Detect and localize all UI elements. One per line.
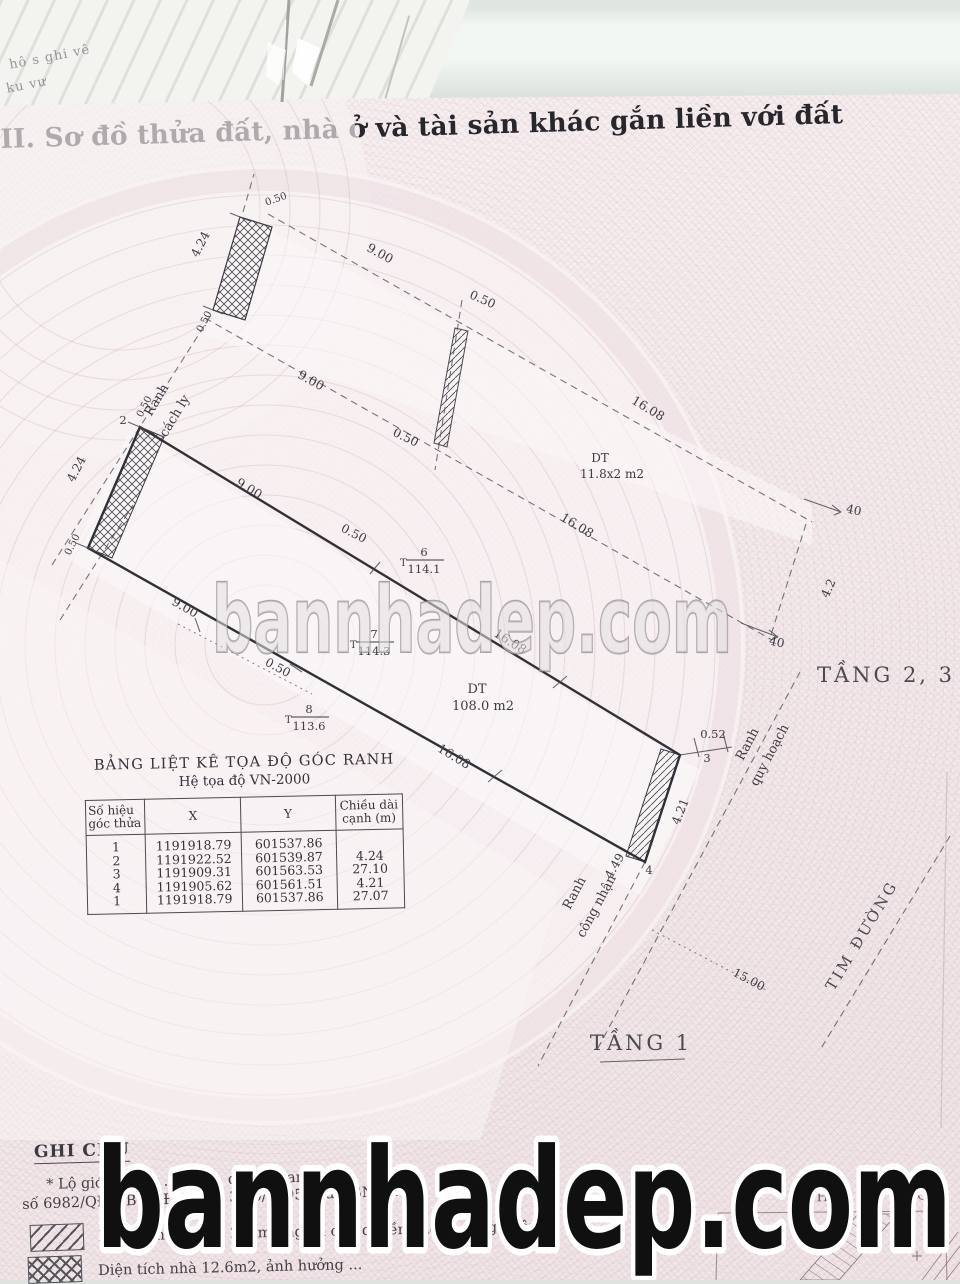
cadastral-diagram: 4.24 0.50 0.50 9.00 0.50 9.00 0.50 16.08… (0, 0, 960, 1280)
guilloche-pattern (0, 0, 812, 1140)
cell-x: 1191918.79 (147, 892, 243, 913)
tang1-underline (600, 1059, 685, 1062)
area-dt2-value: 11.8x2 m2 (580, 467, 644, 481)
benchmark-value: 113.6 (293, 719, 326, 733)
benchmark-t: T (400, 558, 407, 569)
benchmark-number: 8 (305, 702, 312, 716)
legend-hatch-swatch (30, 1223, 85, 1252)
dim-label: 4.2 (818, 577, 839, 600)
corner-point-3: 3 (703, 751, 710, 765)
cell-len: 27.07 (337, 888, 405, 908)
planning-corner-line (770, 524, 806, 638)
page-fold-line (941, 772, 947, 1128)
coordinate-table-block: BẢNG LIỆT KÊ TỌA ĐỘ GÓC RANH Hệ tọa độ V… (84, 751, 407, 914)
pin-needles (266, 0, 338, 102)
area-dt-value: 108.0 m2 (452, 699, 514, 714)
tang-1-label: TẦNG 1 (590, 1029, 692, 1055)
ranh-quy-hoach-label: Ranh (733, 725, 763, 763)
dim-label: 40 (768, 634, 786, 651)
benchmark-number: 6 (420, 545, 427, 559)
obscured-text-fragment: B g H P Q (750, 1187, 930, 1206)
notes-heading: GHI CHÚ (34, 1140, 130, 1165)
benchmark-value: 114.3 (358, 644, 391, 658)
cell-id: 1 (87, 894, 147, 914)
benchmark-t: T (350, 640, 357, 651)
tang-2-3-label: TẦNG 2, 3 (817, 661, 955, 687)
benchmark-value: 114.1 (408, 562, 441, 576)
corner-point-4: 4 (645, 863, 652, 877)
dim-label: 15.00 (730, 965, 767, 993)
col-header-id: Số hiệu góc thửa (85, 799, 145, 835)
dim-label: 40 (845, 502, 863, 519)
col-header-len: Chiều dài cạnh (m) (335, 794, 403, 830)
tim-duong-line (820, 836, 950, 1050)
corner-point-2: 2 (119, 413, 126, 427)
cell-id: 3 (87, 867, 147, 882)
cell-len (336, 829, 404, 849)
coordinate-table: Số hiệu góc thửa X Y Chiều dài cạnh (m) … (85, 793, 405, 914)
benchmark-t: T (285, 715, 292, 726)
cell-id: 1 (86, 834, 146, 854)
cell-len: 27.10 (336, 861, 404, 876)
dim-label: 0.52 (700, 727, 726, 741)
tim-duong-label: TIM ĐƯỜNG (822, 877, 902, 994)
area-dt-label: DT (467, 682, 486, 697)
col-header-x: X (145, 797, 242, 834)
cell-y: 601537.86 (242, 890, 337, 911)
area-dt2-label: DT (591, 451, 609, 465)
benchmark-number: 7 (370, 627, 377, 641)
col-header-y: Y (240, 795, 335, 832)
